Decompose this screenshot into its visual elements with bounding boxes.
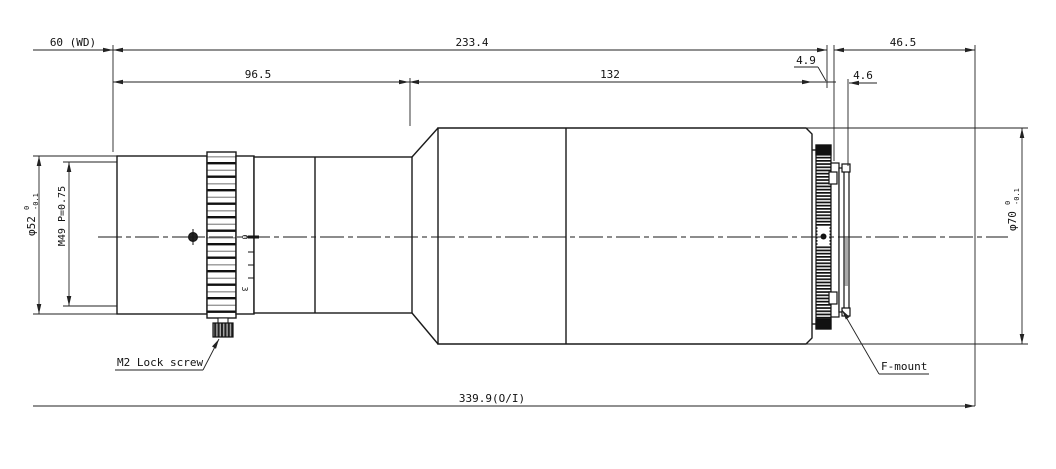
bayonet-cap-top <box>842 164 850 172</box>
dim-text-132: 132 <box>600 68 620 81</box>
arrow-233-right <box>817 48 827 53</box>
mount-ring-center-dot <box>821 234 827 240</box>
cone-bottom-edge <box>412 313 438 344</box>
arrow-132-left <box>409 80 419 85</box>
arrow-96-left <box>113 80 123 85</box>
dim-text-d70-tol-upper: 0 <box>1004 201 1012 205</box>
dim-text-d52-group: φ52 0 -0.1 <box>23 193 40 236</box>
dim-text-d52-tol-upper: 0 <box>23 206 31 210</box>
dim-text-d70-tol-lower: -0.1 <box>1013 188 1021 205</box>
dim-text-4-6: 4.6 <box>853 69 873 82</box>
mid-barrel <box>254 157 412 313</box>
lock-screw-body <box>213 323 233 337</box>
dim-text-wd: 60 (WD) <box>50 36 96 49</box>
scale-label-three: 3 <box>240 287 249 292</box>
cone-top-edge <box>412 128 438 157</box>
lock-screw <box>213 318 233 337</box>
arrow-46-left <box>834 48 844 53</box>
dim-text-d52: φ52 <box>25 216 38 236</box>
dim-text-m49-group: M49 P=0.75 <box>57 186 68 246</box>
arrow-wd-right <box>103 48 113 53</box>
label-f-mount: F-mount <box>881 360 927 373</box>
arrow-d70-top <box>1020 128 1025 138</box>
dim-text-d70: φ70 <box>1006 211 1019 231</box>
dim-text-4-9: 4.9 <box>796 54 816 67</box>
dim-text-96: 96.5 <box>245 68 272 81</box>
drawing-canvas: 0 3 <box>0 0 1056 469</box>
bayonet-gray-strip <box>845 238 849 286</box>
arrow-m49-top <box>67 162 72 172</box>
dim-text-46: 46.5 <box>890 36 917 49</box>
dim-text-233: 233.4 <box>455 36 488 49</box>
leader-4-9-slant <box>818 67 826 81</box>
leader-fmount-slant <box>842 310 879 374</box>
arrow-lockscrew-leader <box>212 338 221 349</box>
focus-ring <box>207 152 236 318</box>
lens-drawing: 0 3 <box>0 0 1056 469</box>
arrow-d52-top <box>37 156 42 166</box>
arrow-d70-bottom <box>1020 334 1025 344</box>
arrow-96-right <box>399 80 409 85</box>
mount-tab-top <box>829 172 837 184</box>
dim-text-m49: M49 P=0.75 <box>57 186 68 246</box>
dim-text-d70-group: φ70 0 -0.1 <box>1004 188 1021 231</box>
lens-body <box>117 128 816 344</box>
arrow-d52-bottom <box>37 304 42 314</box>
arrow-overall-right <box>965 404 975 409</box>
arrow-46-right <box>965 48 975 53</box>
arrow-233-left <box>113 48 123 53</box>
arrow-132-right <box>802 80 812 85</box>
dim-text-d52-tol-lower: -0.1 <box>32 193 40 210</box>
lock-screw-stem <box>218 318 228 323</box>
svg-text:3: 3 <box>240 287 249 292</box>
mount-tab-bottom <box>829 292 837 304</box>
arrow-m49-bottom <box>67 296 72 306</box>
label-lock-screw: M2 Lock screw <box>117 356 203 369</box>
dim-text-overall: 339.9(O/I) <box>459 392 525 405</box>
mount-ring-cap-top <box>816 145 831 155</box>
rear-barrel <box>438 128 812 344</box>
mount-ring-cap-bottom <box>816 319 831 329</box>
